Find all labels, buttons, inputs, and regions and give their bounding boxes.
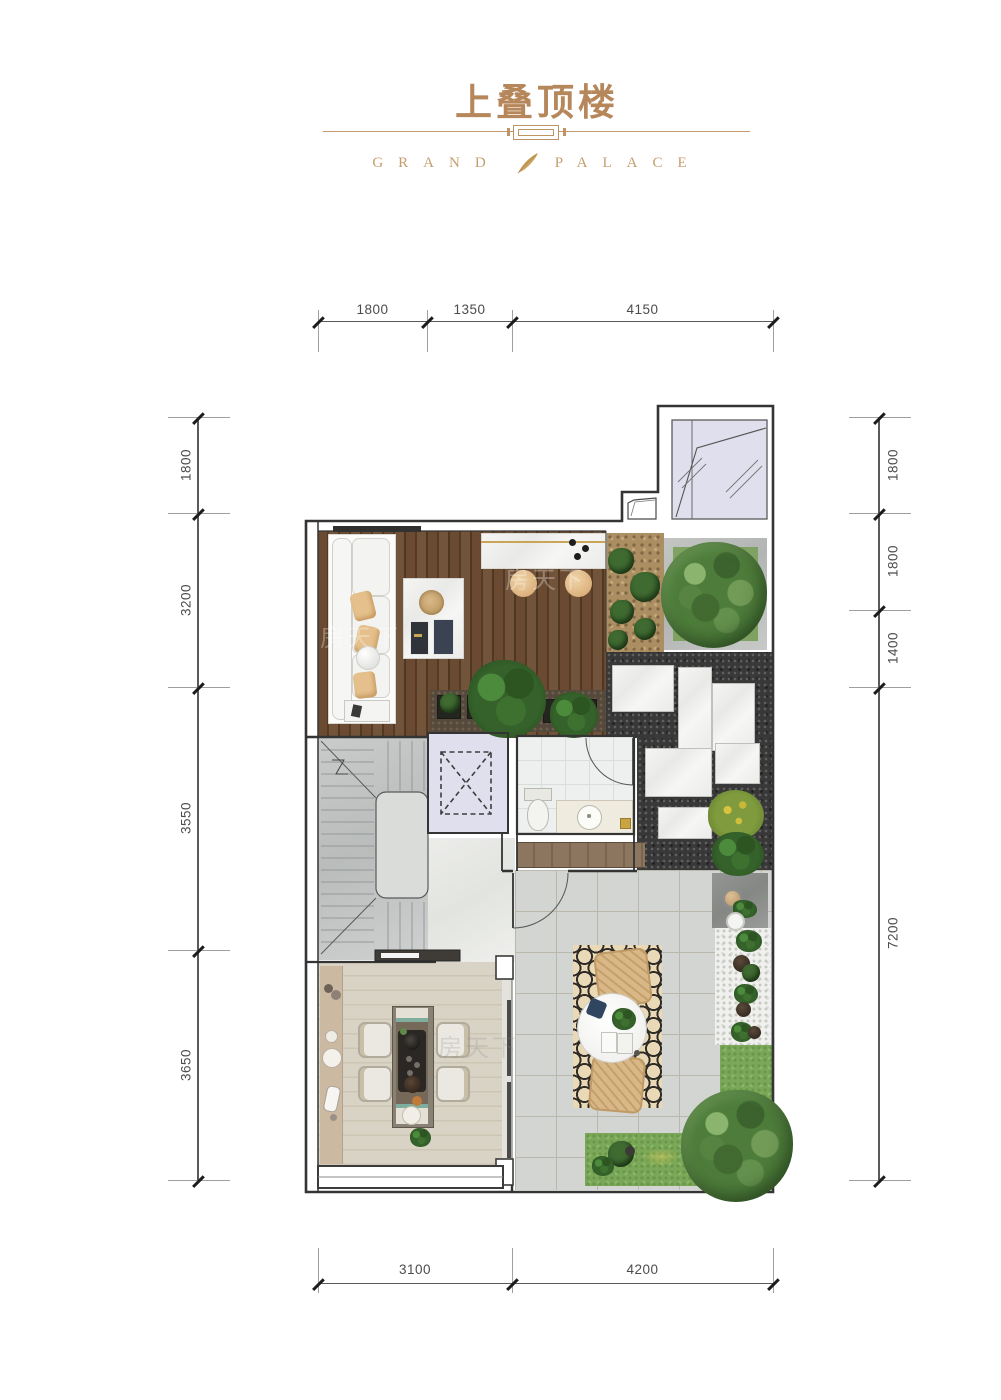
- lawn-stone: [625, 1146, 635, 1156]
- dim-label: 1800: [318, 302, 427, 317]
- orange-cup: [412, 1096, 422, 1106]
- rattan-lounge-chair: [588, 1054, 647, 1114]
- divider-cap-right: [563, 128, 566, 136]
- brand-row: GRAND PALACE: [287, 150, 787, 176]
- dining-chair: [436, 1022, 470, 1058]
- large-tropical-plant: [468, 660, 546, 738]
- ornamental-divider: [323, 124, 750, 140]
- paver: [658, 807, 712, 839]
- brand-word-palace: PALACE: [555, 155, 702, 172]
- page-title: 上叠顶楼: [287, 72, 787, 126]
- pebble-pot: [748, 1026, 761, 1039]
- bar-gold-trim: [481, 541, 605, 543]
- green-bush: [712, 832, 764, 876]
- teapot: [404, 1076, 421, 1093]
- dim-line-left: [197, 417, 198, 1180]
- tea-room-window: [318, 1166, 503, 1188]
- dining-chair: [358, 1022, 392, 1058]
- pebble-plant: [734, 984, 758, 1004]
- skylight-large: [672, 420, 767, 519]
- floor-plant-small: [410, 1128, 431, 1147]
- glass-door-track: [502, 978, 512, 1160]
- tea-cup: [406, 1056, 412, 1062]
- dim-label: 1400: [886, 632, 901, 664]
- garden-tree: [661, 542, 767, 648]
- garden-bowl: [726, 912, 745, 931]
- paver: [715, 743, 760, 784]
- dim-line-top: [318, 321, 773, 322]
- dim-label: 4200: [512, 1262, 773, 1277]
- sideboard-cup: [325, 1030, 338, 1043]
- rattan-decor: [419, 590, 444, 615]
- tea-cup: [414, 1062, 420, 1068]
- sofa-cushion: [352, 538, 390, 596]
- divider-cartouche-inner: [518, 129, 554, 136]
- table-book: [410, 621, 429, 655]
- sofa-backrest: [332, 538, 352, 720]
- sideboard-plate: [322, 1048, 342, 1068]
- dim-line-right: [878, 417, 879, 1180]
- lawn-yellow-patch: [642, 1148, 680, 1166]
- dim-label: 3100: [318, 1262, 512, 1277]
- paver: [645, 748, 712, 797]
- sofa-round-pillow: [356, 646, 380, 670]
- dim-label: 3650: [179, 1049, 194, 1081]
- terrace-threshold: [517, 842, 645, 868]
- pouf-stool: [510, 570, 537, 597]
- skylight-small: [628, 498, 656, 519]
- lawn-plant: [592, 1156, 614, 1176]
- sideboard-decor: [330, 1114, 337, 1121]
- elevator-shaft: [428, 733, 508, 833]
- staircase-floor: [318, 738, 428, 960]
- pebble-pot: [736, 1002, 751, 1017]
- feather-icon: [515, 150, 541, 176]
- dim-label: 1800: [886, 545, 901, 577]
- bath-gold-accent: [620, 818, 631, 829]
- lounge-bar-counter: [481, 533, 607, 569]
- dessert-plate: [402, 1106, 421, 1125]
- tea-herb: [400, 1028, 407, 1035]
- table-dot: [634, 1050, 640, 1056]
- table-book: [617, 1033, 633, 1054]
- dim-label: 3550: [179, 802, 194, 834]
- pouf-stool: [565, 570, 592, 597]
- divider-cap-left: [507, 128, 510, 136]
- divider-cartouche: [513, 125, 559, 140]
- dim-line-bottom: [318, 1283, 773, 1284]
- pebble-plant: [736, 930, 762, 952]
- bar-dot: [569, 539, 576, 546]
- dim-label: 1800: [886, 449, 901, 481]
- toilet-bowl: [527, 799, 549, 831]
- dining-chair: [436, 1066, 470, 1102]
- paver: [712, 683, 755, 751]
- dim-label: 4150: [512, 302, 773, 317]
- table-plant: [612, 1008, 636, 1030]
- basin-drain: [587, 814, 591, 818]
- dim-label: 1800: [179, 449, 194, 481]
- dim-label: 3200: [179, 584, 194, 616]
- bar-dot: [574, 553, 581, 560]
- hallway-floor: [428, 838, 515, 962]
- dim-label: 1350: [427, 302, 512, 317]
- terrace-tree: [681, 1090, 793, 1202]
- table-book: [433, 619, 454, 655]
- dining-chair: [358, 1066, 392, 1102]
- dim-label: 7200: [886, 917, 901, 949]
- sideboard-decor: [331, 990, 341, 1000]
- lounge-top-vent: [333, 526, 421, 532]
- sofa-pillow: [352, 671, 377, 699]
- floor-plan-page: 上叠顶楼 GRAND PALACE: [0, 0, 1001, 1400]
- table-book: [601, 1032, 617, 1053]
- paver: [678, 667, 712, 751]
- brand-word-grand: GRAND: [372, 155, 500, 172]
- bar-dot: [582, 545, 589, 552]
- paver: [612, 665, 674, 712]
- table-runner-end: [396, 1008, 428, 1018]
- tea-kettle: [404, 1034, 420, 1050]
- book-gold-detail: [414, 634, 422, 637]
- tropical-plant: [550, 692, 598, 738]
